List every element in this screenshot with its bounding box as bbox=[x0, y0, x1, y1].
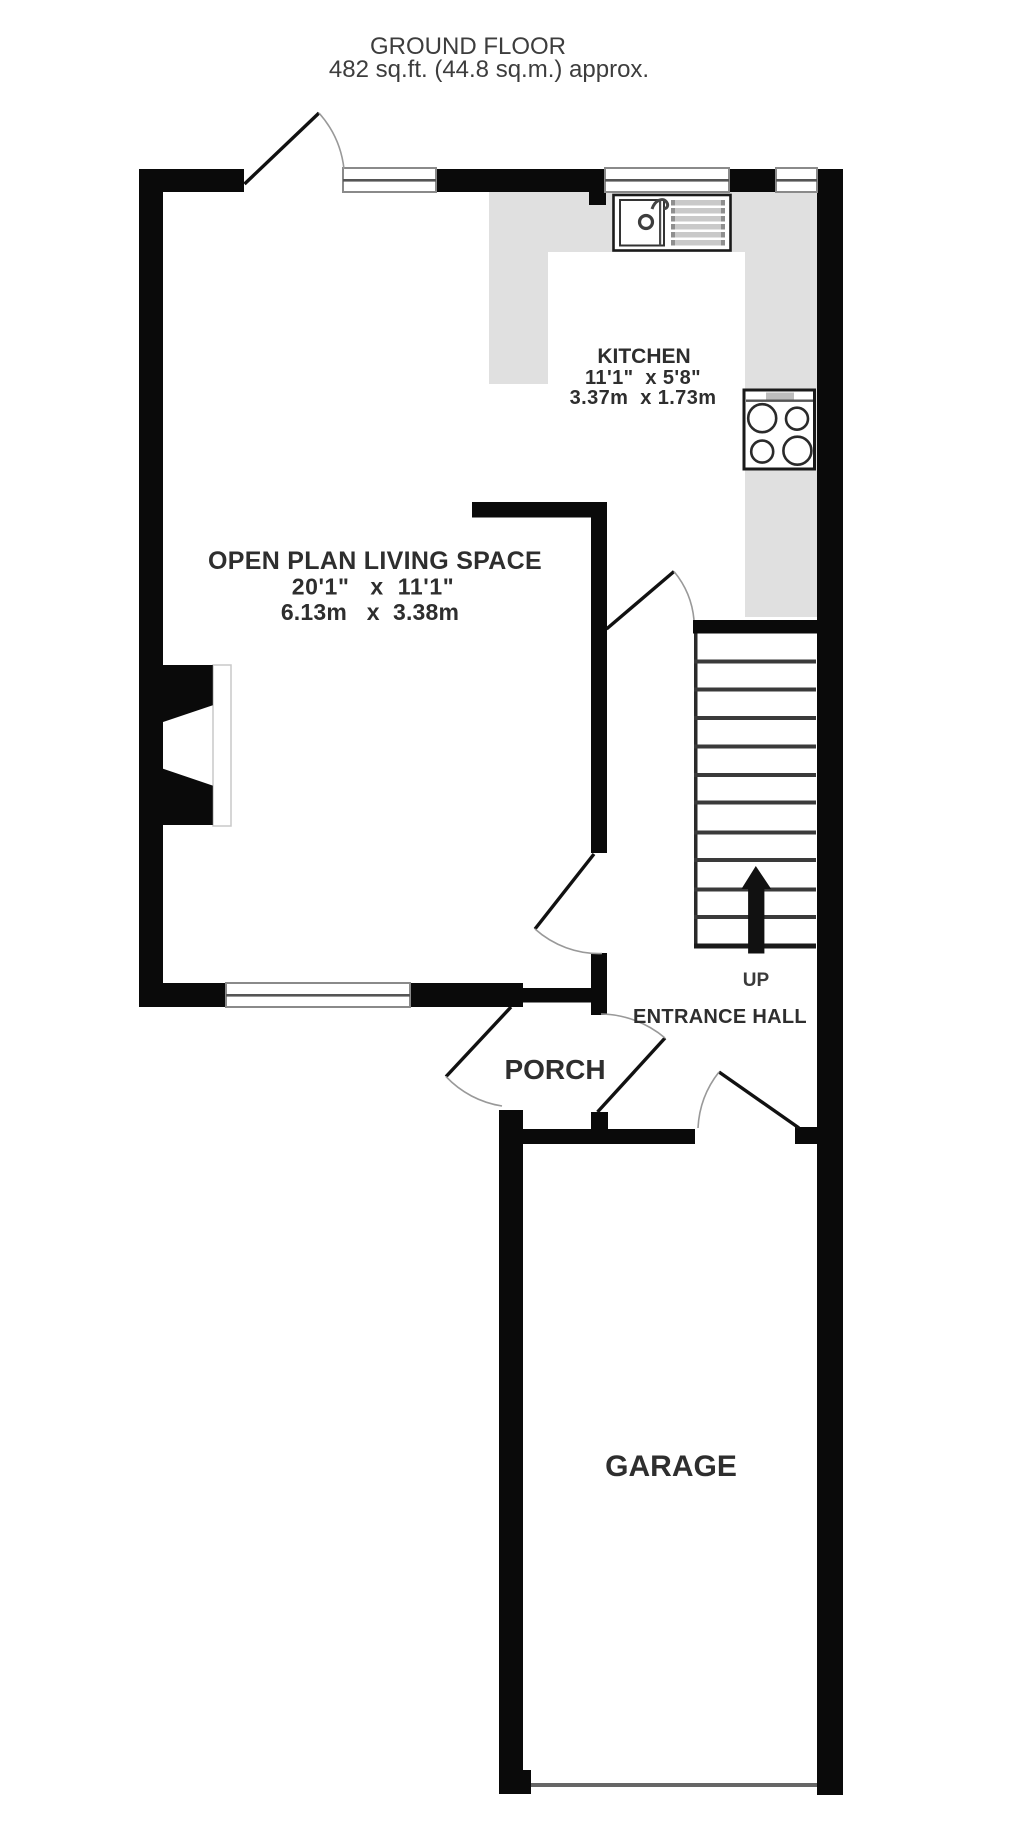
svg-text:UP: UP bbox=[743, 970, 770, 991]
svg-text:PORCH: PORCH bbox=[504, 1054, 605, 1085]
svg-text:6.13m x 3.38m: 6.13m x 3.38m bbox=[281, 599, 459, 625]
svg-text:20'1" x 11'1": 20'1" x 11'1" bbox=[292, 574, 455, 600]
svg-text:KITCHEN: KITCHEN bbox=[597, 345, 690, 368]
svg-text:GARAGE: GARAGE bbox=[605, 1450, 737, 1483]
svg-text:3.37m x 1.73m: 3.37m x 1.73m bbox=[570, 387, 717, 409]
svg-text:482 sq.ft. (44.8 sq.m.) approx: 482 sq.ft. (44.8 sq.m.) approx. bbox=[329, 56, 649, 83]
svg-text:ENTRANCE HALL: ENTRANCE HALL bbox=[633, 1006, 807, 1028]
svg-text:11'1" x 5'8": 11'1" x 5'8" bbox=[585, 367, 701, 389]
svg-text:OPEN PLAN LIVING SPACE: OPEN PLAN LIVING SPACE bbox=[208, 547, 542, 575]
